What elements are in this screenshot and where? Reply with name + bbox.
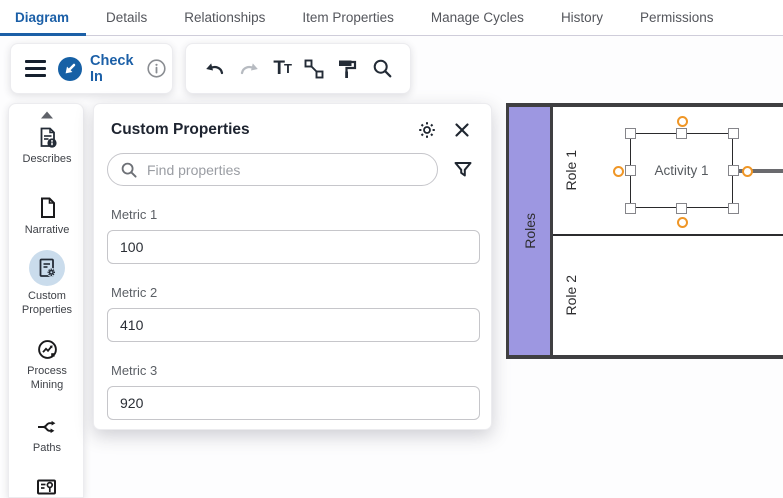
panel-title: Custom Properties (111, 121, 401, 139)
chart-circle-icon (36, 338, 59, 361)
sidebar-item-narrative[interactable]: Narrative (9, 196, 85, 238)
filter-funnel-icon[interactable] (452, 159, 474, 181)
tab-diagram[interactable]: Diagram (15, 10, 69, 25)
field-label-metric-3: Metric 3 (111, 363, 491, 378)
undo-icon[interactable] (202, 57, 226, 81)
search-field[interactable] (107, 153, 438, 186)
lane-label: Role 2 (563, 275, 579, 315)
document-gear-icon (36, 257, 58, 279)
document-info-icon (36, 126, 59, 149)
connection-anchor-right[interactable] (742, 166, 753, 177)
search-input[interactable] (147, 162, 425, 178)
chevron-up-icon (39, 110, 55, 120)
tab-permissions[interactable]: Permissions (640, 10, 714, 25)
check-in-label: Check In (90, 53, 134, 85)
resize-handle-w[interactable] (625, 165, 636, 176)
search-icon[interactable] (371, 57, 394, 80)
activity-label: Activity 1 (654, 163, 708, 178)
resize-handle-n[interactable] (676, 128, 687, 139)
lane-role-2[interactable]: Role 2 (553, 236, 783, 355)
pool-header[interactable]: Roles (509, 107, 553, 355)
tab-bar: Diagram Details Relationships Item Prope… (0, 0, 783, 36)
resize-handle-e[interactable] (728, 165, 739, 176)
tab-details[interactable]: Details (106, 10, 147, 25)
sidebar-item-label: Custom Properties (16, 290, 78, 318)
tab-manage-cycles[interactable]: Manage Cycles (431, 10, 524, 25)
resize-handle-nw[interactable] (625, 128, 636, 139)
app-window: { "colors": { "accent_blue": "#1b5fa7", … (0, 0, 783, 493)
toolbar-diagram-tools: TT (185, 43, 411, 94)
activity-shape[interactable]: Activity 1 (630, 133, 733, 208)
resize-handle-se[interactable] (728, 203, 739, 214)
text-format-icon[interactable]: TT (273, 59, 291, 78)
page-icon (36, 196, 59, 220)
search-row (107, 153, 474, 186)
field-input-metric-2[interactable] (107, 308, 480, 342)
connection-anchor-left[interactable] (613, 166, 624, 177)
close-icon[interactable] (453, 121, 471, 139)
sidebar-item-partial[interactable] (9, 479, 85, 497)
gear-icon[interactable] (417, 120, 437, 140)
card-key-icon (35, 479, 59, 497)
resize-handle-ne[interactable] (728, 128, 739, 139)
sidebar-item-custom-properties[interactable]: Custom Properties (9, 250, 85, 318)
lane-label: Role 1 (563, 150, 579, 190)
connector-icon[interactable] (303, 58, 325, 80)
tab-item-properties[interactable]: Item Properties (302, 10, 394, 25)
field-label-metric-2: Metric 2 (111, 285, 491, 300)
sidebar-item-label: Narrative (25, 224, 70, 238)
field-input-metric-3[interactable] (107, 386, 480, 420)
sidebar-scroll-up[interactable] (9, 110, 85, 120)
redo-icon[interactable] (238, 57, 262, 81)
resize-handle-sw[interactable] (625, 203, 636, 214)
field-label-metric-1: Metric 1 (111, 207, 491, 222)
sidebar-item-paths[interactable]: Paths (9, 416, 85, 456)
search-icon (120, 161, 138, 179)
active-tab-indicator (0, 33, 86, 36)
sidebar-tools: Describes Narrative (8, 103, 84, 498)
menu-icon[interactable] (25, 60, 46, 77)
sidebar-item-label: Describes (23, 153, 72, 167)
check-in-button[interactable]: Check In (58, 53, 134, 85)
pool-label: Roles (522, 213, 538, 249)
tab-relationships[interactable]: Relationships (184, 10, 265, 25)
resize-handle-s[interactable] (676, 203, 687, 214)
tab-history[interactable]: History (561, 10, 603, 25)
panel-header: Custom Properties (94, 104, 491, 140)
check-in-icon (58, 57, 82, 81)
info-icon[interactable] (146, 58, 167, 79)
sidebar-item-process-mining[interactable]: Process Mining (9, 338, 85, 393)
custom-properties-panel: Custom Properties (93, 103, 492, 430)
sidebar-item-label: Paths (33, 442, 61, 456)
branch-icon (35, 416, 59, 438)
field-input-metric-1[interactable] (107, 230, 480, 264)
toolbar-main: Check In (10, 43, 173, 94)
connection-anchor-bottom[interactable] (677, 217, 688, 228)
selected-item-highlight (29, 250, 65, 286)
sidebar-item-describes[interactable]: Describes (9, 126, 85, 167)
connection-anchor-top[interactable] (677, 116, 688, 127)
format-painter-icon[interactable] (336, 57, 359, 80)
sidebar-item-label: Process Mining (19, 365, 75, 393)
